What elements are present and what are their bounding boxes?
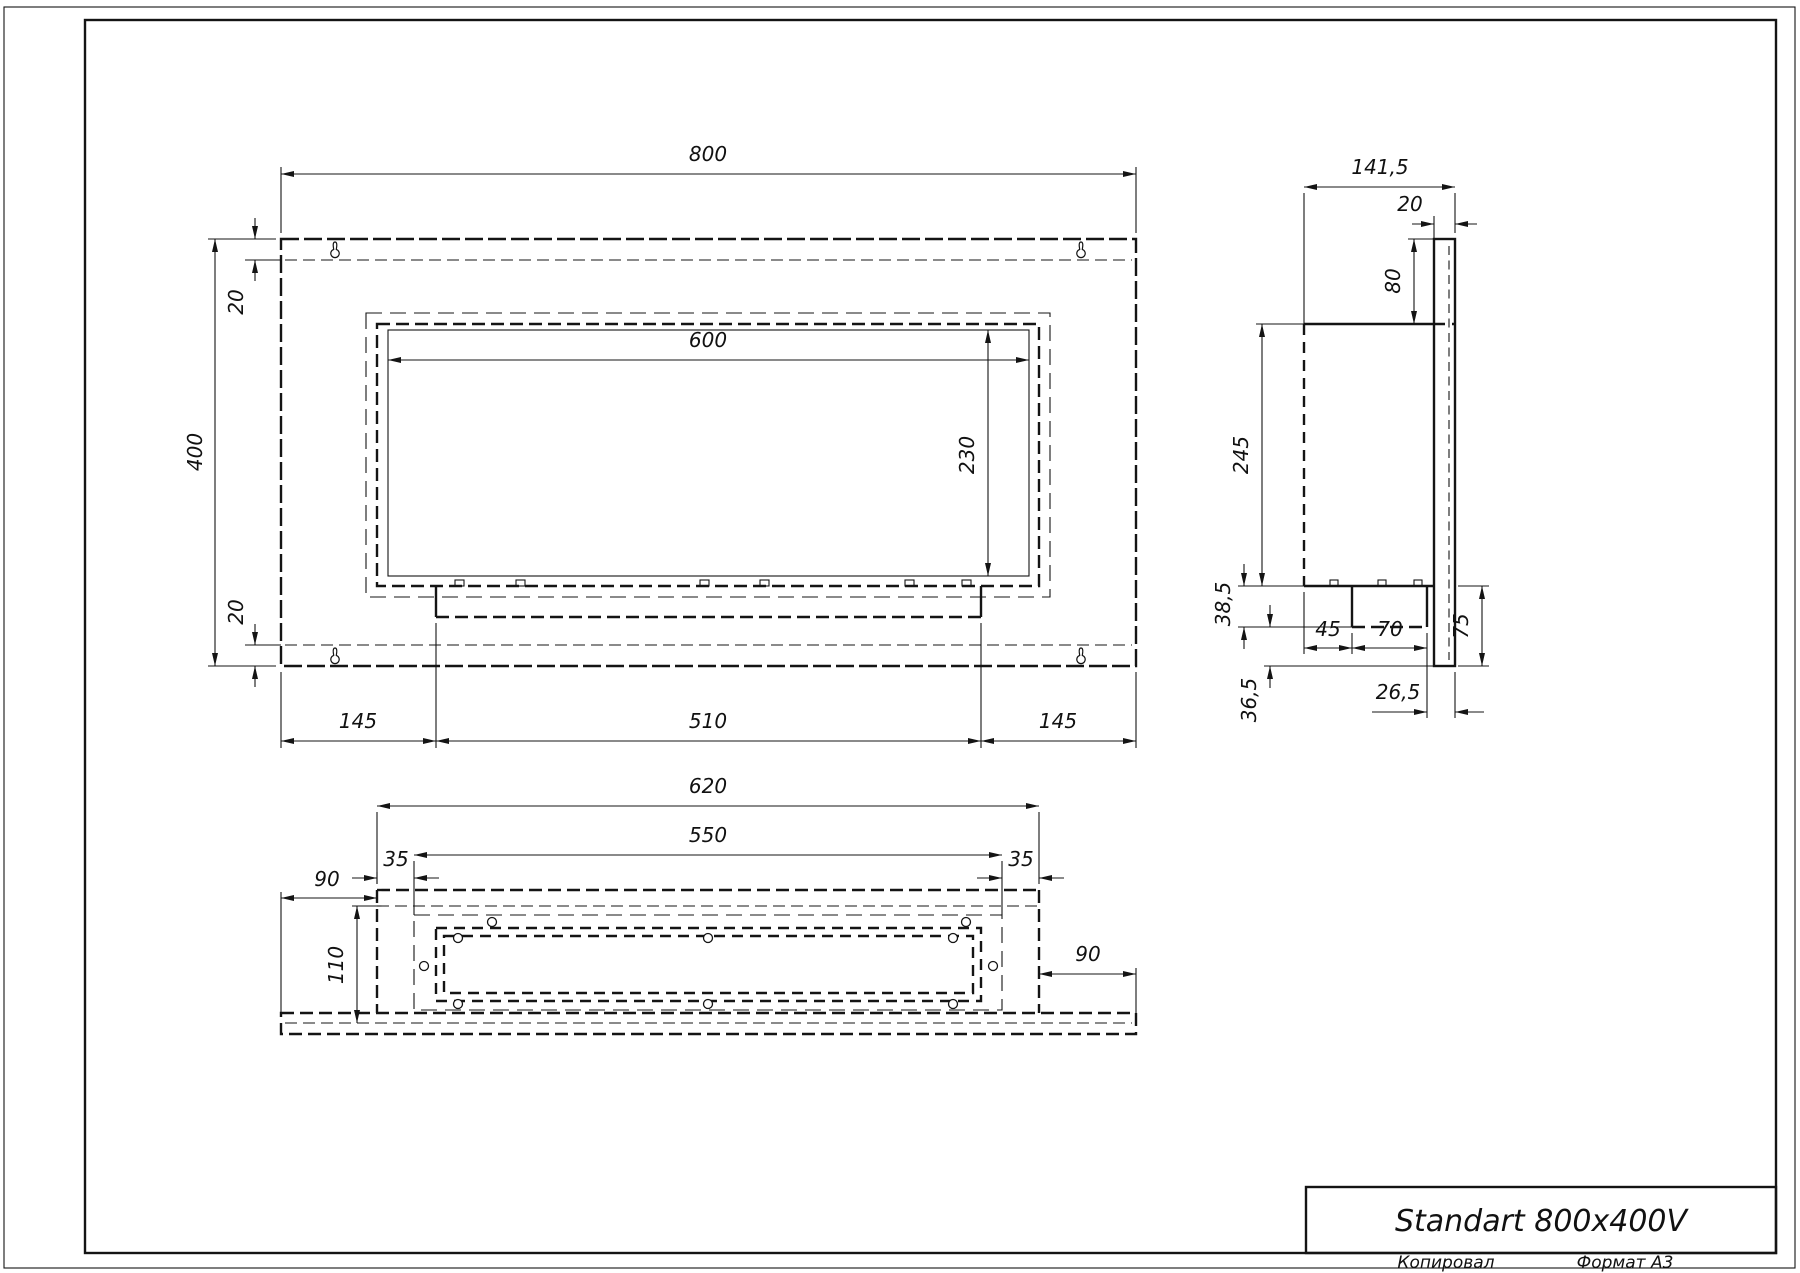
dim-opening-height: 230: [955, 436, 979, 474]
drawing-title: Standart 800x400V: [1395, 1204, 1690, 1239]
page-frame: [4, 7, 1795, 1268]
opening-outline: [388, 330, 1029, 576]
keyhole-icon: [331, 648, 339, 664]
footer-format-label: Формат A3: [1577, 1253, 1674, 1273]
technical-drawing: 800 400 20 20 600 230 145 510 145: [0, 0, 1800, 1273]
outer-border: [4, 7, 1795, 1268]
front-panel-outline: [281, 239, 1136, 666]
dim-margin-left: 90: [314, 867, 339, 891]
front-view: 800 400 20 20 600 230 145 510 145: [183, 142, 1136, 748]
dim-margin-right: 145: [1039, 709, 1077, 733]
dim-rear-gap: 26,5: [1376, 680, 1421, 704]
screw-hole: [949, 934, 958, 943]
title-block: Standart 800x400V Копировал Формат A3: [1306, 1187, 1776, 1273]
screw-hole: [488, 918, 497, 927]
dim-front-offset-bottom: 20: [224, 599, 248, 624]
screw-hole: [989, 962, 998, 971]
screw-hole: [949, 1000, 958, 1009]
dim-top-to-body: 80: [1381, 268, 1405, 293]
dim-opening-width: 600: [689, 328, 727, 352]
footer-copied-label: Копировал: [1397, 1253, 1494, 1273]
screw-hole: [454, 1000, 463, 1009]
dim-depth: 110: [324, 946, 348, 984]
drawing-sheet: 800 400 20 20 600 230 145 510 145: [0, 0, 1800, 1273]
screw-hole: [454, 934, 463, 943]
dim-tray-drop: 38,5: [1211, 582, 1235, 627]
keyhole-icon: [1077, 648, 1085, 664]
keyhole-icon: [1077, 242, 1085, 258]
dim-front-height: 400: [183, 433, 207, 471]
wall-plate: [1434, 239, 1455, 666]
dim-inset-right: 35: [1008, 847, 1033, 871]
dim-frame-width: 550: [689, 823, 727, 847]
dim-plate-below: 75: [1449, 613, 1473, 638]
screw-hole: [962, 918, 971, 927]
side-view: 141,5 20 80 245 38,5 36,5 45 70: [1211, 155, 1489, 722]
screw-hole: [704, 934, 713, 943]
dim-margin-right: 90: [1075, 942, 1100, 966]
inner-frame: [85, 20, 1776, 1253]
screw-hole: [704, 1000, 713, 1009]
firebox-outline: [377, 324, 1039, 586]
dim-depth: 141,5: [1351, 155, 1408, 179]
dim-box-width: 620: [689, 774, 727, 798]
dim-inset-left: 35: [383, 847, 408, 871]
dim-front-width: 800: [689, 142, 727, 166]
mount-frame: [414, 915, 1002, 1010]
dim-plate-thickness: 20: [1397, 192, 1422, 216]
dim-below-tray: 36,5: [1237, 678, 1261, 723]
screw-hole: [420, 962, 429, 971]
tray-inner-hidden: [444, 936, 973, 993]
dim-front-to-tray: 45: [1315, 617, 1340, 641]
dim-body-height: 245: [1229, 436, 1253, 474]
dim-front-offset-top: 20: [224, 289, 248, 314]
dim-tray-width: 510: [689, 709, 727, 733]
bottom-view: 620 550 35 35 90 110 90: [281, 774, 1136, 1034]
keyhole-icon: [331, 242, 339, 258]
dim-tray-depth: 70: [1377, 617, 1402, 641]
niche-outline: [366, 313, 1050, 597]
dim-margin-left: 145: [339, 709, 377, 733]
